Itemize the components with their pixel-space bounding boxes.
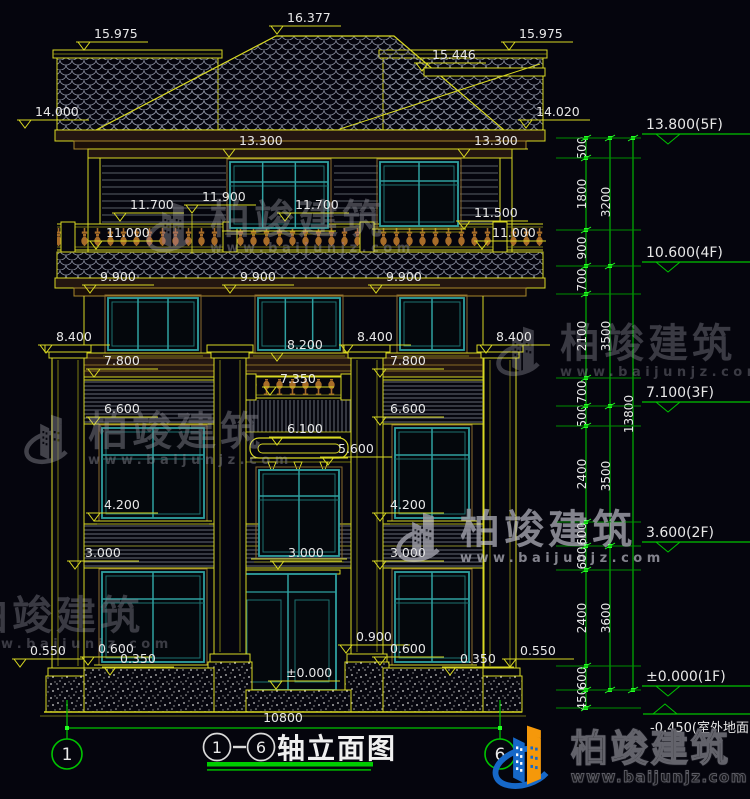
elevation-value: 6.600 xyxy=(104,401,140,416)
dim-chain-value: 1800 xyxy=(575,179,589,210)
cad-canvas: 15.97516.37715.44615.97514.00014.02013.3… xyxy=(0,0,750,799)
dim-chain-value: 2400 xyxy=(575,459,589,490)
elevation-value: 15.975 xyxy=(519,26,563,41)
level-value: ±0.000(1F) xyxy=(646,669,726,685)
elevation-value: 0.350 xyxy=(120,651,156,666)
dim-chain-value: 3600 xyxy=(599,603,613,634)
elevation-value: 0.550 xyxy=(30,643,66,658)
dim-chain-value: 900 xyxy=(575,237,589,260)
dim-chain-value: 3500 xyxy=(599,461,613,492)
elevation-value: 0.550 xyxy=(520,643,556,658)
dim-chain-value: 2400 xyxy=(575,603,589,634)
elevation-value: 11.900 xyxy=(202,189,246,204)
elevation-value: 11.700 xyxy=(295,197,339,212)
elevation-value: 13.300 xyxy=(239,133,283,148)
level-marker: 7.100(3F) xyxy=(642,385,750,412)
level-marker: 10.600(4F) xyxy=(642,245,750,272)
title-underline-thick xyxy=(207,762,373,767)
elevation-value: 6.100 xyxy=(287,421,323,436)
elevation-value: 5.600 xyxy=(338,441,374,456)
dim-chain-value: 700 xyxy=(575,269,589,292)
elevation-value: 8.400 xyxy=(496,329,532,344)
window xyxy=(372,159,466,232)
title-axis-end: 6 xyxy=(256,738,266,757)
drawing-title: 1 6 轴立面图 xyxy=(204,732,398,771)
elevation-value: 11.000 xyxy=(492,225,536,240)
elevation-value: 3.000 xyxy=(390,545,426,560)
dim-chain-value: 600 xyxy=(575,547,589,570)
elevation-value: 15.446 xyxy=(432,47,476,62)
elevation-mark: 15.975 xyxy=(76,26,148,50)
dim-chain: 5001800900700210070050024006006002400600… xyxy=(575,135,591,711)
elevation-value: 0.350 xyxy=(460,651,496,666)
elevation-value: 13.300 xyxy=(474,133,518,148)
window xyxy=(100,295,206,356)
elevation-value: 9.900 xyxy=(100,269,136,284)
level-marker: ±0.000(1F) xyxy=(642,669,750,696)
elevation-value: 0.600 xyxy=(390,641,426,656)
company-logo-icon xyxy=(490,721,564,795)
level-value: 3.600(2F) xyxy=(646,525,714,541)
company-url: www.baijunjz.com xyxy=(571,768,748,786)
green-dimension-layer: 5001800900700210070050024006006002400600… xyxy=(556,117,750,736)
window xyxy=(392,295,472,356)
level-value: 7.100(3F) xyxy=(646,385,714,401)
dim-chain-value: 3200 xyxy=(599,187,613,218)
company-name: 柏竣建筑 xyxy=(571,730,748,769)
elevation-value: 8.400 xyxy=(357,329,393,344)
elevation-value: 11.700 xyxy=(130,197,174,212)
dim-chain-value: 600 xyxy=(575,667,589,690)
elevation-value: 8.200 xyxy=(287,337,323,352)
company-logo: 柏竣建筑 www.baijunjz.com xyxy=(490,721,748,795)
elevation-value: 7.350 xyxy=(280,371,316,386)
dim-chain: 3200350035003600 xyxy=(599,135,615,693)
dim-chain-value: 3500 xyxy=(599,321,613,352)
dim-chain-value: 600 xyxy=(575,523,589,546)
grid-bubble-1-label: 1 xyxy=(62,745,73,765)
title-underline-thin xyxy=(207,769,371,771)
elevation-value: 4.200 xyxy=(390,497,426,512)
level-value: 10.600(4F) xyxy=(646,245,723,261)
bottom-dimension-value: 10800 xyxy=(263,710,303,725)
elevation-value: 9.900 xyxy=(240,269,276,284)
level-value: 13.800(5F) xyxy=(646,117,723,133)
elevation-value: 7.800 xyxy=(390,353,426,368)
elevation-value: 14.000 xyxy=(35,104,79,119)
elevation-value: 16.377 xyxy=(287,10,331,25)
elevation-value: 3.000 xyxy=(85,545,121,560)
title-axis-start: 1 xyxy=(212,738,222,757)
elevation-value: 3.000 xyxy=(288,545,324,560)
elevation-mark: 15.975 xyxy=(501,26,573,50)
elevation-value: 11.000 xyxy=(106,225,150,240)
elevation-value: 11.500 xyxy=(474,205,518,220)
elevation-value: 8.400 xyxy=(56,329,92,344)
level-marker: 3.600(2F) xyxy=(642,525,750,552)
elevation-value: 9.900 xyxy=(386,269,422,284)
elevation-value: ±0.000 xyxy=(286,665,332,680)
elevation-value: 6.600 xyxy=(390,401,426,416)
level-marker: 13.800(5F) xyxy=(642,117,750,144)
dim-chain: 13800 xyxy=(622,135,638,693)
elevation-mark: 16.377 xyxy=(269,10,341,34)
elevation-value: 14.020 xyxy=(536,104,580,119)
elevation-drawing: 15.97516.37715.44615.97514.00014.02013.3… xyxy=(0,0,750,799)
elevation-value: 0.900 xyxy=(356,629,392,644)
elevation-value: 7.800 xyxy=(104,353,140,368)
dim-chain-value: 2100 xyxy=(575,321,589,352)
dim-chain-value: 13800 xyxy=(622,395,636,433)
dim-chain-value: 700 xyxy=(575,381,589,404)
elevation-value: 15.975 xyxy=(94,26,138,41)
elevation-value: 4.200 xyxy=(104,497,140,512)
dim-tick xyxy=(65,726,69,730)
column xyxy=(207,345,253,712)
title-label: 轴立面图 xyxy=(277,732,397,765)
